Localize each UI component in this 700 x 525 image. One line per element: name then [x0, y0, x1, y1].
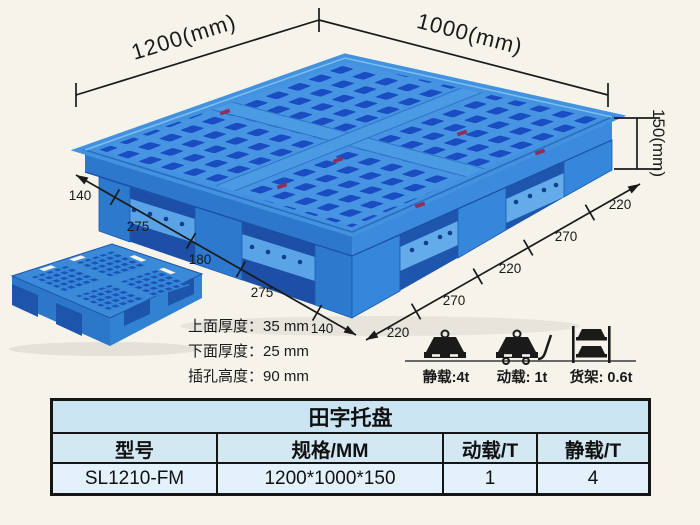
- spec-table-header-row: 型号 规格/MM 动载/T 静载/T: [53, 434, 648, 464]
- cell-static-load: 4: [538, 464, 648, 493]
- segment-label: 220: [499, 261, 522, 276]
- cell-model: SL1210-FM: [53, 464, 218, 493]
- segment-label: 220: [387, 325, 410, 340]
- segment-label: 275: [251, 285, 274, 300]
- dim-length-label: 1200(mm): [128, 9, 239, 65]
- small-pallet-shadow: [9, 342, 201, 356]
- header-dynamic-load: 动载/T: [444, 434, 538, 464]
- header-model: 型号: [53, 434, 218, 464]
- header-size: 规格/MM: [218, 434, 444, 464]
- spec-table-data-row: SL1210-FM 1200*1000*150 1 4: [53, 464, 648, 493]
- segment-label: 270: [555, 229, 578, 244]
- segment-label: 180: [189, 252, 212, 267]
- dim-height-label: 150(mm): [649, 109, 668, 177]
- rack-load-label: 货架: 0.6t: [570, 368, 633, 386]
- spec-line-bottom-thickness: 下面厚度：25 mm: [188, 343, 309, 360]
- product-datasheet: 1200(mm) 1000(mm) 150(mm) 140 275 180 27…: [0, 0, 700, 525]
- spec-table-title: 田字托盘: [53, 401, 648, 434]
- segment-label: 220: [609, 197, 632, 212]
- thickness-specs: 上面厚度：35 mm 下面厚度：25 mm 插孔高度：90 mm: [188, 318, 309, 385]
- dim-width-label: 1000(mm): [414, 8, 525, 59]
- small-pallet-illustration: [9, 244, 202, 356]
- dynamic-load-label: 动载: 1t: [497, 368, 548, 386]
- cell-dynamic-load: 1: [444, 464, 538, 493]
- rack-load-icon: [572, 326, 611, 363]
- dynamic-load-icon: [496, 331, 551, 365]
- spec-table: 田字托盘 型号 规格/MM 动载/T 静载/T SL1210-FM 1200*1…: [50, 398, 651, 496]
- segment-label: 140: [311, 321, 334, 336]
- static-load-label: 静载:4t: [423, 368, 470, 386]
- header-static-load: 静载/T: [538, 434, 648, 464]
- cell-size: 1200*1000*150: [218, 464, 444, 493]
- spec-line-top-thickness: 上面厚度：35 mm: [188, 318, 309, 335]
- segment-label: 270: [443, 293, 466, 308]
- segment-label: 275: [127, 219, 150, 234]
- spec-line-slot-height: 插孔高度：90 mm: [188, 368, 309, 385]
- segment-label: 140: [69, 188, 92, 203]
